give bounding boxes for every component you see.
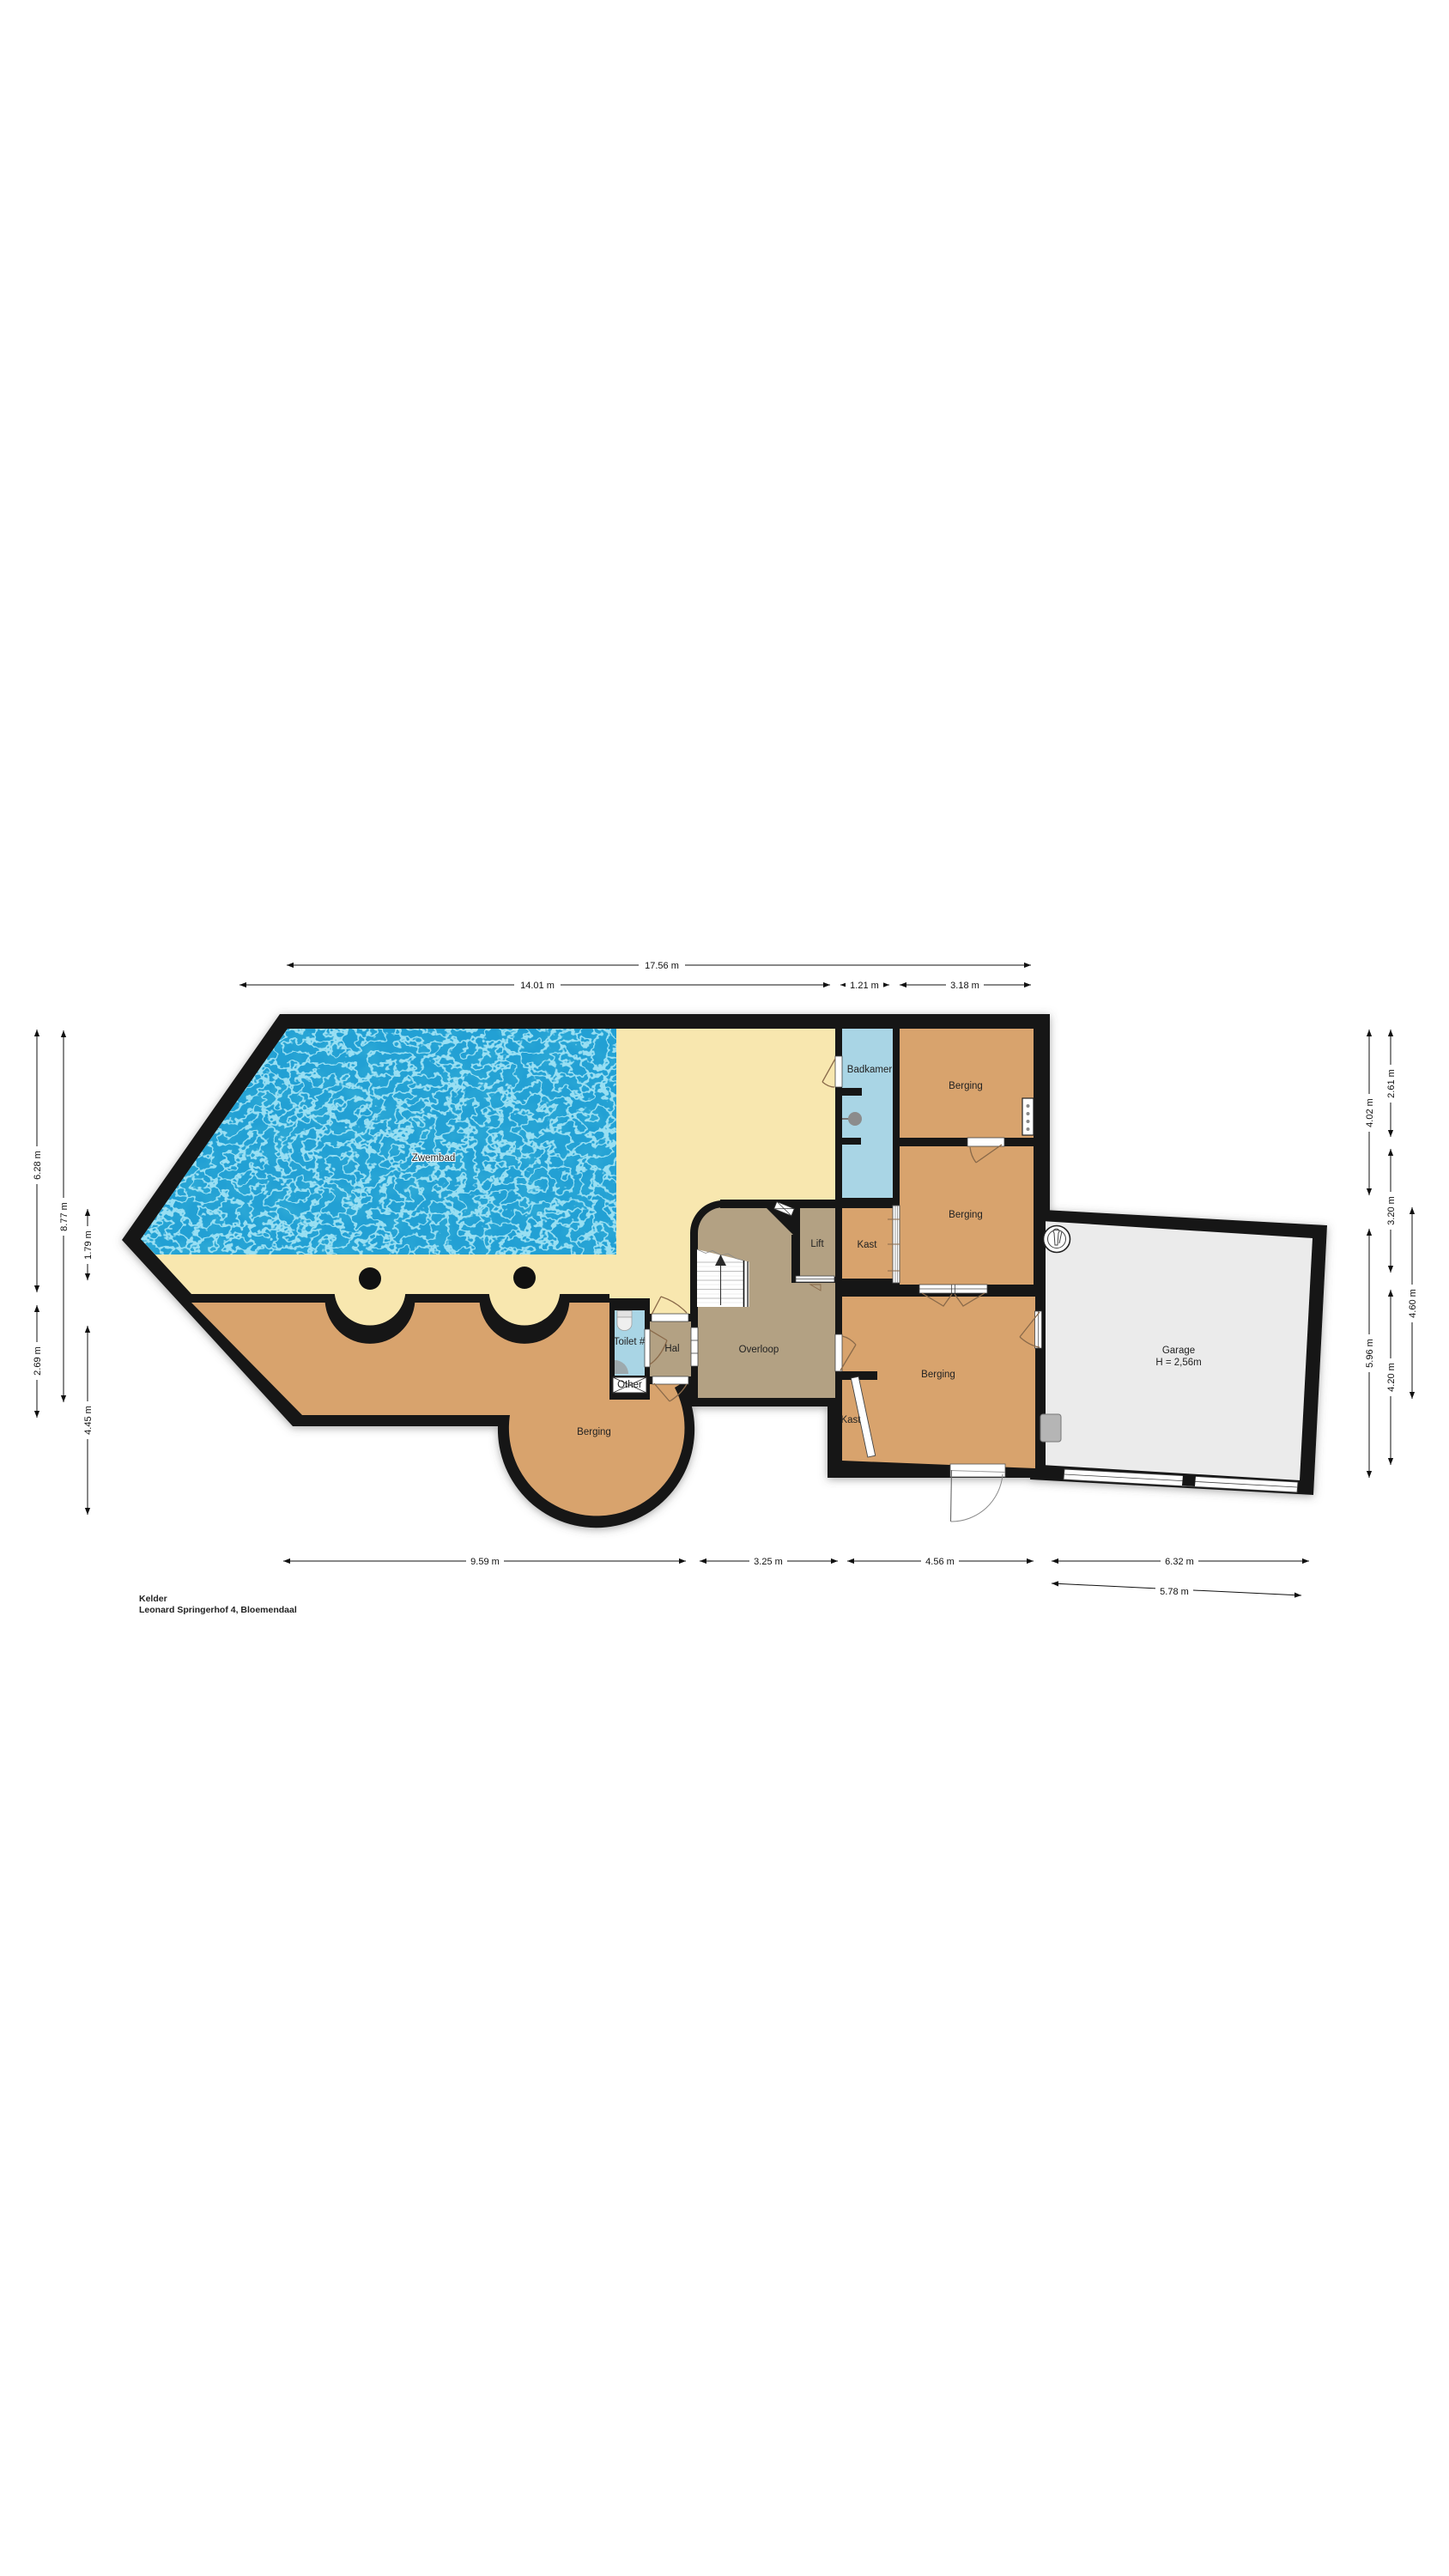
svg-text:8.77 m: 8.77 m <box>59 1202 70 1231</box>
svg-text:Kast: Kast <box>840 1415 861 1425</box>
svg-text:Other: Other <box>617 1380 642 1390</box>
svg-text:Lift: Lift <box>810 1239 824 1249</box>
svg-text:Berging: Berging <box>577 1427 611 1437</box>
svg-text:Toilet #: Toilet # <box>614 1337 646 1347</box>
svg-text:6.28 m: 6.28 m <box>33 1151 43 1180</box>
svg-text:14.01 m: 14.01 m <box>520 981 555 991</box>
svg-text:2.69 m: 2.69 m <box>33 1346 43 1376</box>
svg-text:Leonard Springerhof 4, Bloemen: Leonard Springerhof 4, Bloemendaal <box>139 1605 297 1615</box>
svg-text:H = 2,56m: H = 2,56m <box>1155 1358 1201 1368</box>
svg-text:Overloop: Overloop <box>739 1345 779 1355</box>
svg-text:4.56 m: 4.56 m <box>925 1557 955 1567</box>
svg-text:3.18 m: 3.18 m <box>950 981 979 991</box>
svg-text:4.20 m: 4.20 m <box>1386 1363 1397 1392</box>
svg-text:Zwembad: Zwembad <box>412 1153 456 1163</box>
svg-text:4.60 m: 4.60 m <box>1408 1289 1418 1318</box>
svg-text:Kelder: Kelder <box>139 1594 167 1604</box>
svg-text:1.79 m: 1.79 m <box>83 1230 94 1260</box>
svg-text:Berging: Berging <box>949 1210 983 1220</box>
svg-text:Garage: Garage <box>1162 1346 1195 1356</box>
svg-text:Kast: Kast <box>857 1240 877 1250</box>
svg-text:4.45 m: 4.45 m <box>83 1406 94 1435</box>
svg-text:6.32 m: 6.32 m <box>1165 1557 1194 1567</box>
svg-text:1.21 m: 1.21 m <box>850 981 879 991</box>
svg-text:2.61 m: 2.61 m <box>1386 1069 1397 1098</box>
svg-text:Berging: Berging <box>921 1370 955 1380</box>
svg-text:3.20 m: 3.20 m <box>1386 1196 1397 1225</box>
svg-text:17.56 m: 17.56 m <box>645 961 679 971</box>
svg-text:Berging: Berging <box>949 1081 983 1091</box>
svg-text:Hal: Hal <box>664 1344 679 1354</box>
svg-text:3.25 m: 3.25 m <box>754 1557 783 1567</box>
svg-text:5.78 m: 5.78 m <box>1160 1587 1189 1597</box>
svg-text:Badkamer: Badkamer <box>847 1065 893 1075</box>
svg-text:9.59 m: 9.59 m <box>470 1557 500 1567</box>
svg-text:4.02 m: 4.02 m <box>1365 1098 1375 1127</box>
svg-text:5.96 m: 5.96 m <box>1365 1339 1375 1368</box>
